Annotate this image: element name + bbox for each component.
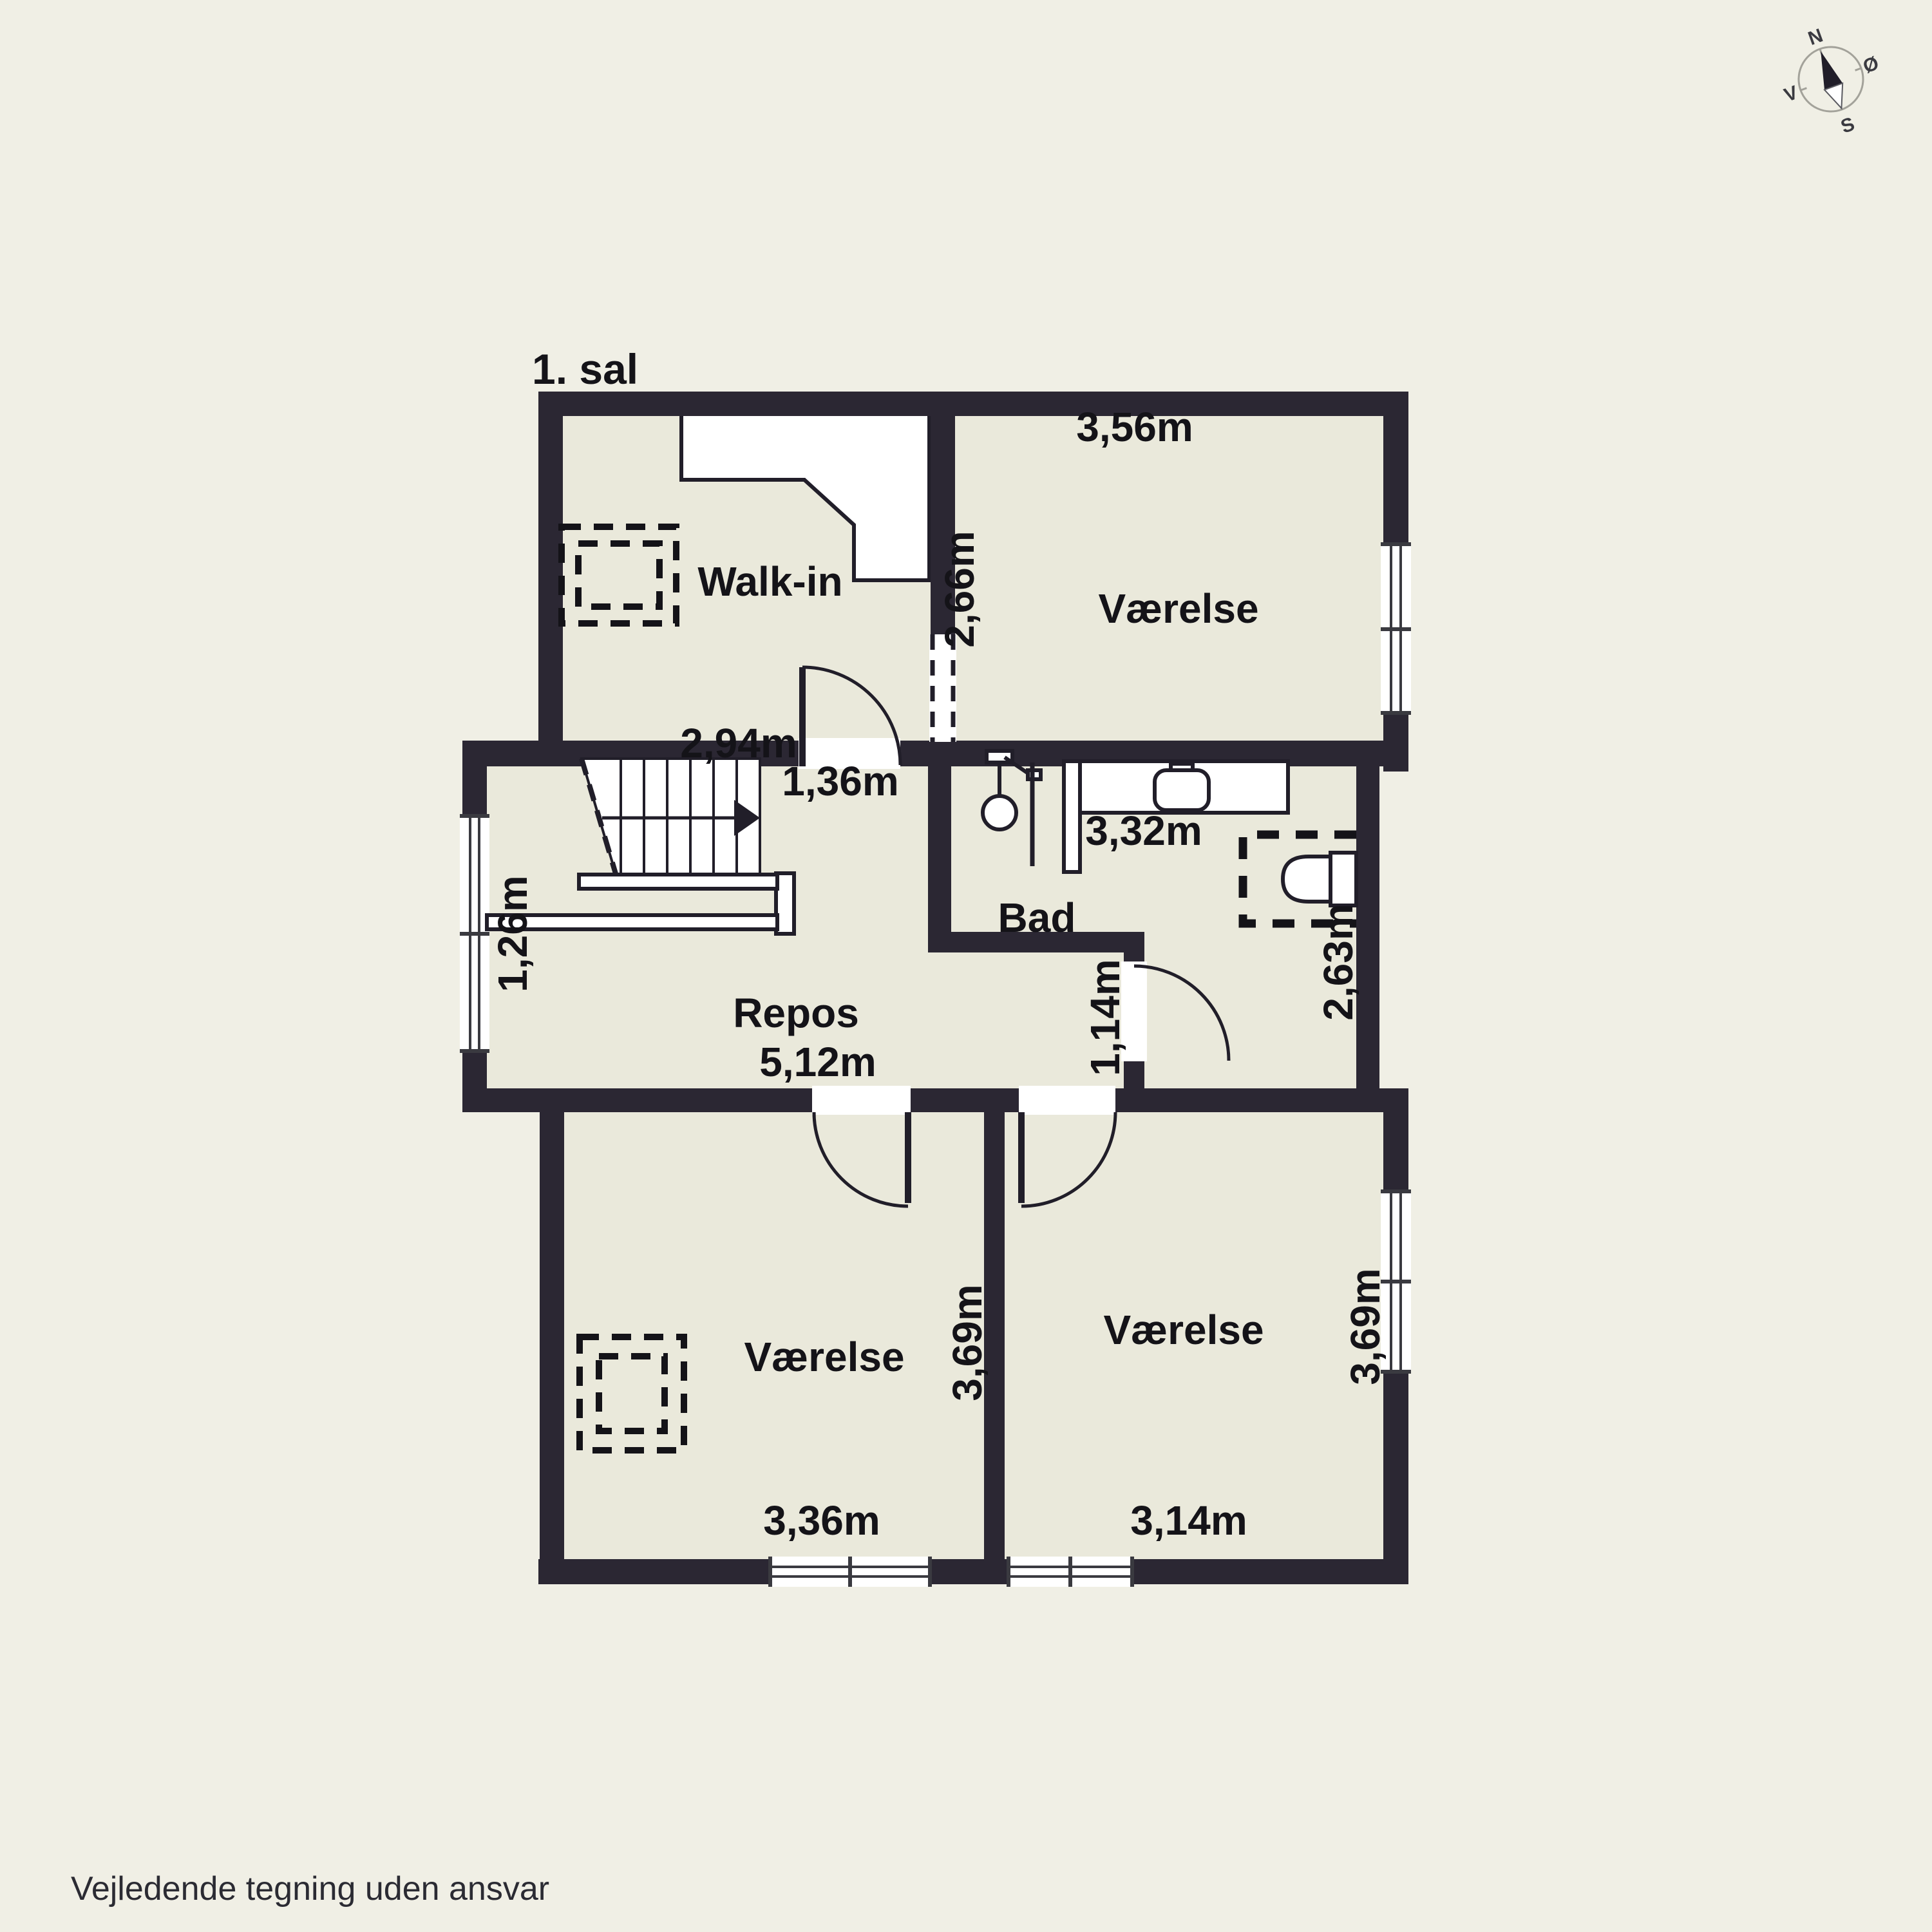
room-label-bedroom-se: Værelse bbox=[1103, 1307, 1264, 1353]
dim-bath-width: 3,32m bbox=[1085, 808, 1202, 854]
room-label-bedroom-ne: Værelse bbox=[1098, 585, 1258, 632]
shower-partition bbox=[1064, 761, 1080, 872]
dim-bedroom-ne-width: 3,56m bbox=[1076, 404, 1193, 450]
dim-bedroom-sw-depth: 3,69m bbox=[944, 1284, 990, 1401]
floor-plan-canvas: 1. sal 3,56m Værelse Walk-in 2,94m 1,36m… bbox=[0, 0, 1932, 1932]
dim-landing-width: 5,12m bbox=[759, 1039, 876, 1085]
disclaimer-text: Vejledende tegning uden ansvar bbox=[71, 1870, 549, 1908]
wall-divider-middle-bottom bbox=[538, 1088, 1383, 1112]
dim-landing-door: 1,36m bbox=[782, 758, 898, 804]
dim-bedroom-se-width: 3,14m bbox=[1130, 1497, 1247, 1544]
wall-bath-left bbox=[928, 766, 951, 952]
sink-basin bbox=[1155, 770, 1209, 810]
opening-bedroom-se-door bbox=[1019, 1086, 1115, 1115]
wall-top-exterior bbox=[538, 392, 1408, 416]
dim-walkin-width: 2,94m bbox=[680, 720, 797, 766]
window-bedroom-sw-south bbox=[770, 1557, 930, 1587]
wall-left-bottom-band bbox=[540, 1088, 564, 1584]
dim-landing-window: 1,26m bbox=[489, 875, 536, 992]
window-landing-west bbox=[460, 816, 489, 1051]
dim-bedroom-ne-depth: 2,66m bbox=[936, 531, 983, 647]
toilet-tank bbox=[1331, 853, 1356, 905]
dim-bedroom-sw-width: 3,36m bbox=[763, 1497, 880, 1544]
opening-bedroom-sw-door bbox=[812, 1086, 911, 1115]
window-bedroom-se-south bbox=[1009, 1557, 1132, 1587]
dim-bath-door: 1,14m bbox=[1082, 959, 1128, 1075]
wall-right-top-band-upper bbox=[1383, 392, 1408, 546]
window-bedroom-ne-east bbox=[1381, 544, 1411, 713]
room-label-landing: Repos bbox=[733, 990, 859, 1036]
railing-upper-bar bbox=[579, 875, 777, 889]
room-label-walkin: Walk-in bbox=[697, 558, 842, 605]
room-label-bedroom-sw: Værelse bbox=[744, 1334, 904, 1380]
toilet-bowl bbox=[1283, 857, 1331, 902]
wall-bottom-exterior bbox=[538, 1559, 1408, 1584]
dim-bedroom-se-depth: 3,69m bbox=[1342, 1268, 1388, 1385]
room-label-bath: Bad bbox=[998, 895, 1076, 941]
page-title: 1. sal bbox=[532, 345, 638, 393]
dim-bath-depth: 2,63m bbox=[1315, 904, 1361, 1020]
